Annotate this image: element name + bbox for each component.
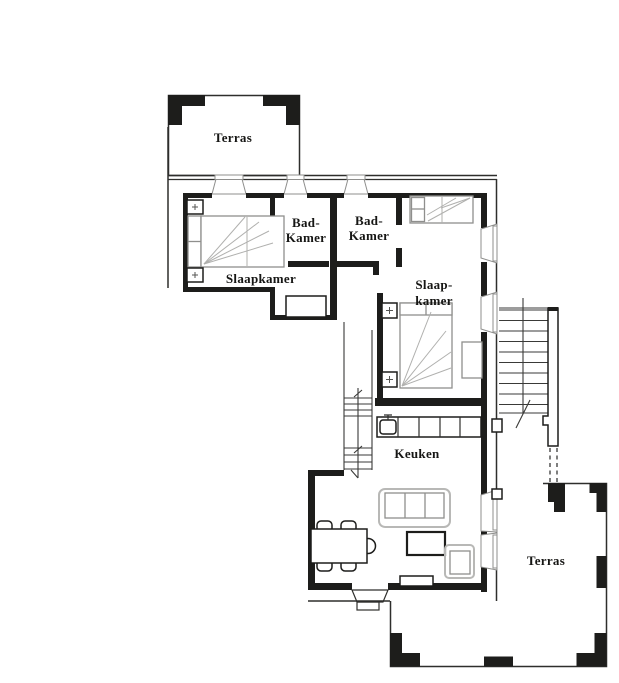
terrace-pillar-icon bbox=[263, 95, 300, 125]
terrace-top: Terras bbox=[168, 95, 300, 176]
double-bed-icon bbox=[400, 303, 452, 388]
bathroom-left: Bad- Kamer bbox=[286, 215, 326, 245]
floor-plan-page: Terras bbox=[0, 0, 619, 683]
terrace-pillar-icon bbox=[168, 95, 205, 125]
staircase-internal bbox=[344, 322, 372, 478]
armchair-icon bbox=[445, 545, 474, 578]
kitchen-counter-icon bbox=[377, 415, 481, 437]
nightstand-icon bbox=[187, 268, 203, 282]
bathroom-left-label-line1: Bad- bbox=[292, 215, 320, 230]
terrace-pillar-icon bbox=[577, 633, 607, 667]
entry-step-window bbox=[286, 296, 326, 317]
nightstand-icon bbox=[382, 303, 397, 318]
bathroom-right-label-line1: Bad- bbox=[355, 213, 383, 228]
bedroom-left-label: Slaapkamer bbox=[226, 271, 296, 286]
staircase-external bbox=[499, 298, 558, 482]
terrace-pillar-icon bbox=[390, 633, 420, 667]
single-bed-icon bbox=[410, 196, 473, 223]
stair-side-wall bbox=[543, 308, 558, 446]
double-bed-icon bbox=[188, 216, 284, 267]
terrace-top-label: Terras bbox=[214, 130, 252, 145]
nightstand-icon bbox=[382, 372, 397, 387]
terrace-pillar-icon bbox=[590, 483, 607, 512]
window-icon bbox=[344, 179, 368, 194]
terrace-pillar-icon bbox=[548, 483, 565, 512]
wall-vent-icon bbox=[492, 419, 502, 432]
floor-plan-drawing: Terras bbox=[0, 0, 619, 683]
bathroom-left-label-line2: Kamer bbox=[286, 230, 326, 245]
nightstand-icon bbox=[187, 200, 203, 214]
top-wall-windows bbox=[212, 175, 368, 194]
window-icon bbox=[212, 179, 246, 194]
terrace-bottom-label: Terras bbox=[527, 553, 565, 568]
bathroom-right-label-line2: Kamer bbox=[349, 228, 389, 243]
wall-vent-icon bbox=[492, 489, 502, 499]
kitchen-living: Keuken bbox=[308, 398, 502, 610]
bedroom-right-label-line1: Slaap- bbox=[415, 277, 452, 292]
bedroom-right-label-line2: kamer bbox=[415, 293, 453, 308]
window-icon bbox=[284, 179, 307, 194]
kitchen-label: Keuken bbox=[394, 446, 440, 461]
terrace-pillar-icon bbox=[484, 657, 513, 667]
bathroom-right: Bad- Kamer bbox=[349, 213, 389, 243]
side-table-icon bbox=[462, 342, 482, 378]
coffee-table-icon bbox=[407, 532, 445, 555]
sofa-icon bbox=[379, 489, 450, 527]
doormat-icon bbox=[400, 576, 433, 586]
terrace-pillar-icon bbox=[597, 556, 607, 588]
dining-set bbox=[311, 521, 376, 571]
bedroom-left: Slaapkamer bbox=[187, 200, 296, 286]
dining-table-icon bbox=[311, 529, 367, 563]
door-steps-icon bbox=[352, 590, 388, 610]
